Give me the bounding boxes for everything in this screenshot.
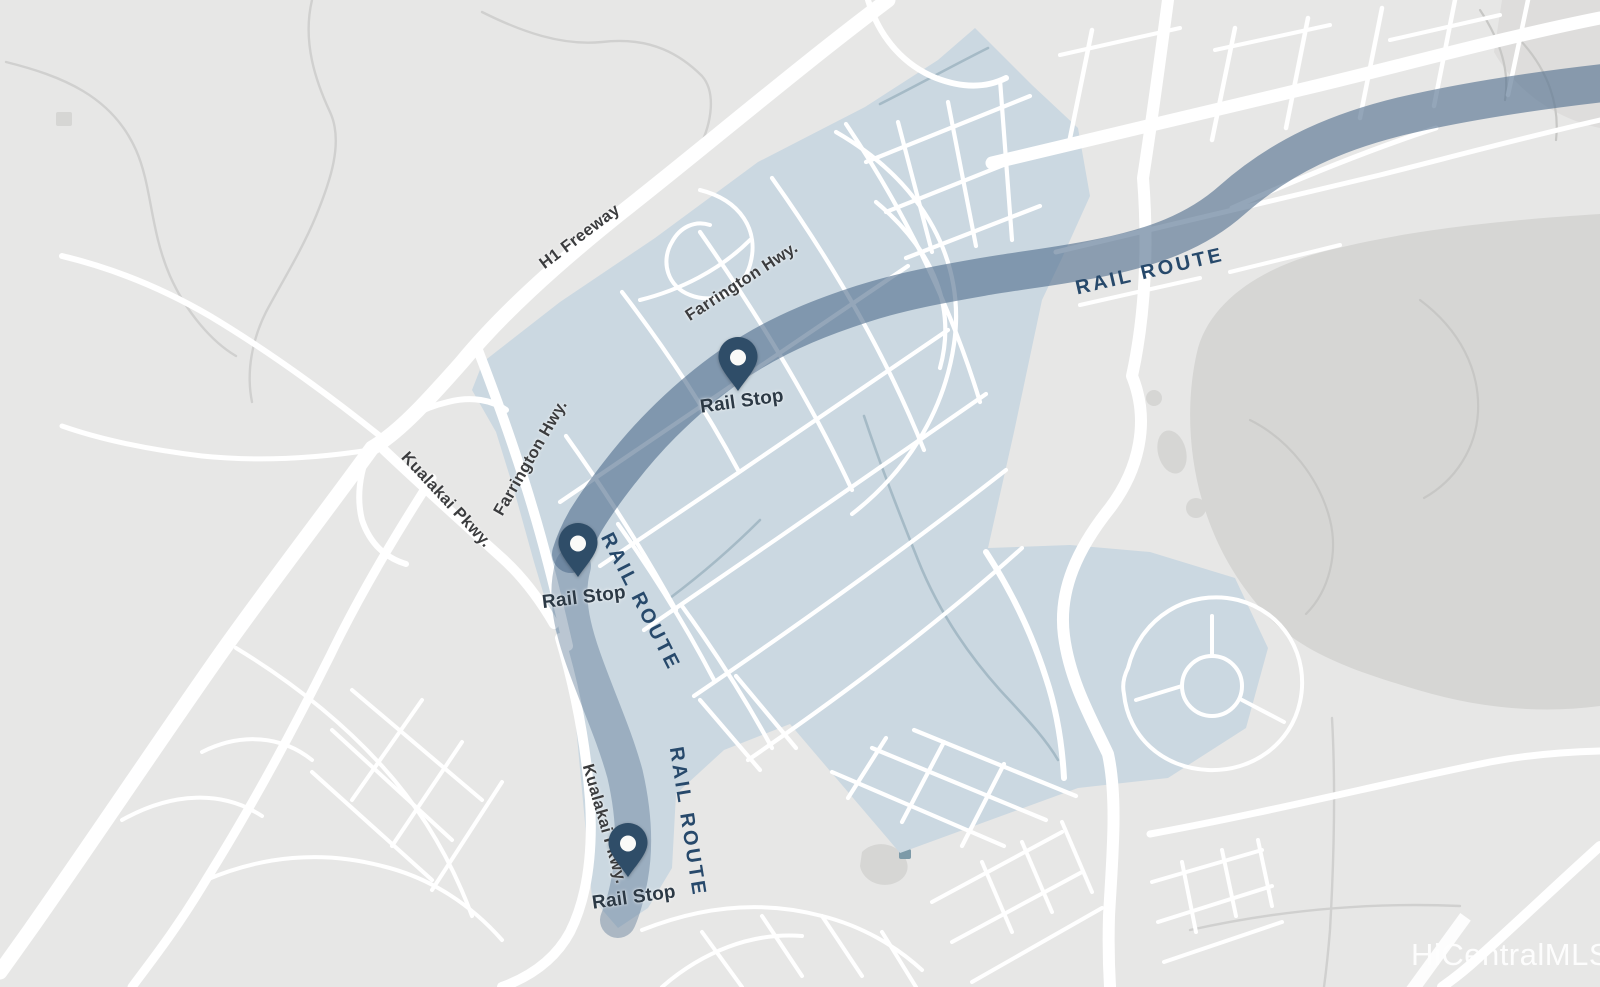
rail-stop-pin-1[interactable] bbox=[716, 337, 760, 393]
rail-stop-pin-2[interactable] bbox=[556, 523, 600, 579]
rail-stop-pin-3[interactable] bbox=[606, 823, 650, 879]
map-canvas[interactable] bbox=[0, 0, 1600, 987]
map-viewport[interactable]: H1 Freeway Farrington Hwy. Farrington Hw… bbox=[0, 0, 1600, 987]
map-pin-icon bbox=[556, 523, 600, 579]
map-pin-icon bbox=[606, 823, 650, 879]
map-pin-icon bbox=[716, 337, 760, 393]
